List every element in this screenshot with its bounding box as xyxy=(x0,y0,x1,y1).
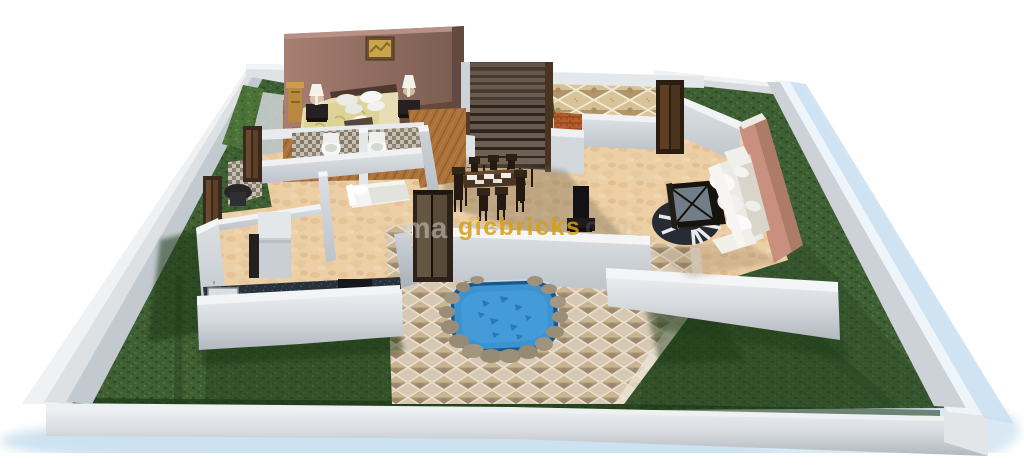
svg-text:.com: .com xyxy=(578,213,636,241)
svg-text:ma: ma xyxy=(404,212,448,245)
svg-text:gicbricks: gicbricks xyxy=(458,213,581,241)
